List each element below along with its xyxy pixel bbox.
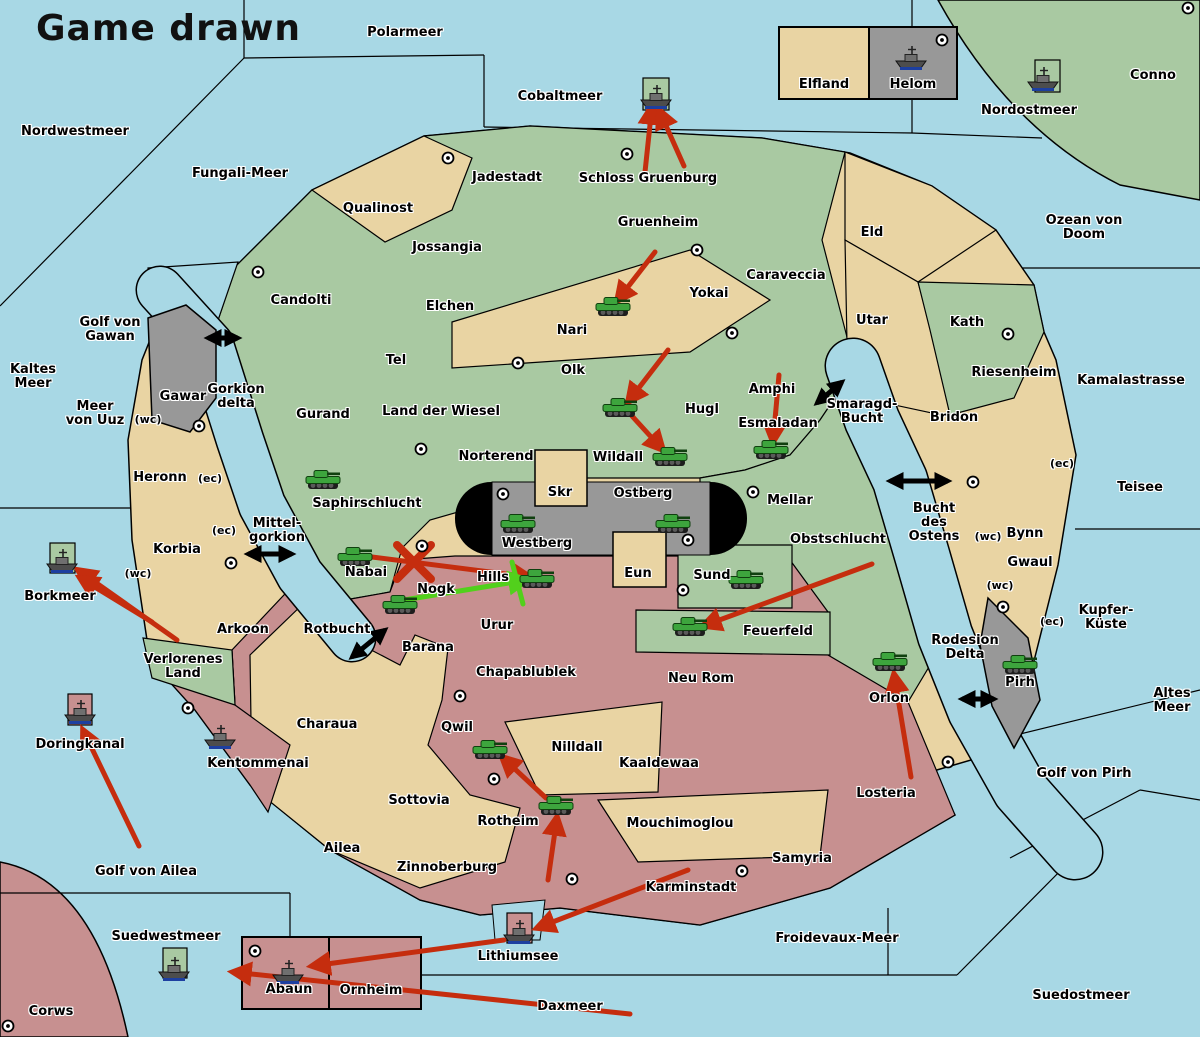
game-map[interactable]: Game drawn PolarmeerNordwestmeerFungali-… <box>0 0 1200 1037</box>
offmap-box[interactable] <box>779 27 869 99</box>
map-canvas[interactable] <box>0 0 1200 1037</box>
region-eun[interactable] <box>613 532 666 587</box>
supply-center-icon <box>443 153 454 164</box>
supply-center-icon <box>194 421 205 432</box>
supply-center-icon <box>567 874 578 885</box>
offmap-box[interactable] <box>329 937 421 1009</box>
supply-center-icon <box>489 774 500 785</box>
supply-center-icon <box>748 487 759 498</box>
supply-center-icon <box>937 35 948 46</box>
supply-center-icon <box>417 541 428 552</box>
supply-center-icon <box>998 602 1009 613</box>
supply-center-icon <box>1003 329 1014 340</box>
supply-center-icon <box>498 489 509 500</box>
supply-center-icon <box>183 703 194 714</box>
supply-center-icon <box>943 757 954 768</box>
supply-center-icon <box>416 444 427 455</box>
page-title: Game drawn <box>36 8 301 49</box>
supply-center-icon <box>250 946 261 957</box>
land-region[interactable] <box>598 790 828 862</box>
supply-center-icon <box>455 691 466 702</box>
supply-center-icon <box>692 245 703 256</box>
supply-center-icon <box>3 1021 14 1032</box>
supply-center-icon <box>678 585 689 596</box>
region-skr[interactable] <box>535 450 587 506</box>
supply-center-icon <box>513 358 524 369</box>
supply-center-icon <box>737 866 748 877</box>
supply-center-icon <box>1183 3 1194 14</box>
supply-center-icon <box>727 328 738 339</box>
supply-center-icon <box>683 535 694 546</box>
supply-center-icon <box>253 267 264 278</box>
supply-center-icon <box>622 149 633 160</box>
supply-center-icon <box>968 477 979 488</box>
supply-center-icon <box>226 558 237 569</box>
